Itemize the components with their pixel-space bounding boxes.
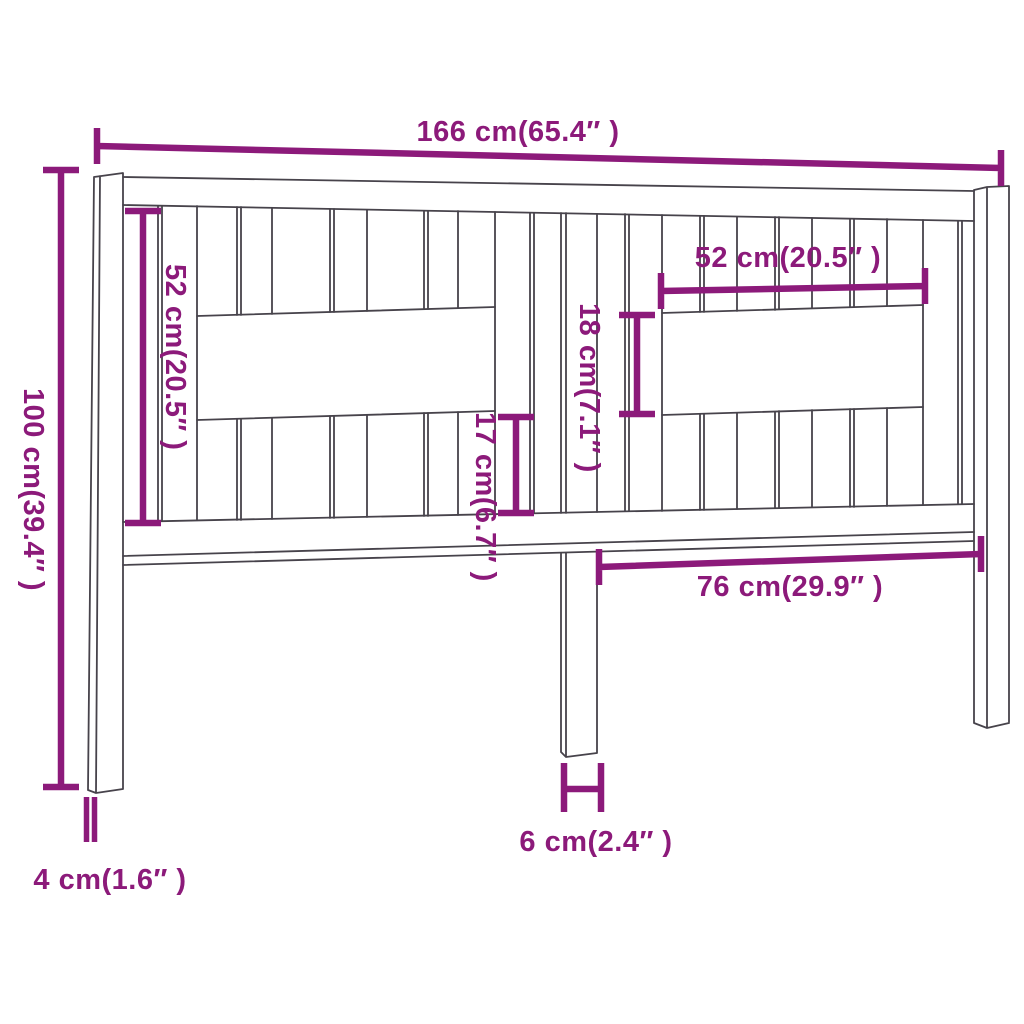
- dim-label-opening-height: 18 cm(7.1″ ): [573, 303, 605, 473]
- opening-right: [662, 305, 923, 415]
- slats-left-upper: [237, 207, 458, 315]
- dim-line-center-leg-width: [564, 763, 601, 812]
- dimension-labels: 166 cm(65.4″ ) 100 cm(39.4″ ) 52 cm(20.5…: [17, 116, 883, 896]
- right-post: [974, 186, 1009, 728]
- dim-label-right-opening-width: 52 cm(20.5″ ): [695, 242, 881, 274]
- dim-line-left-panel-height: [125, 211, 161, 523]
- slats-right-lower: [700, 408, 887, 510]
- dim-label-lower-slat-height: 17 cm(6.7″ ): [469, 412, 501, 582]
- dim-label-total-height: 100 cm(39.4″ ): [17, 388, 49, 591]
- dim-label-side-leg-depth: 4 cm(1.6″ ): [33, 864, 186, 896]
- headboard-dimension-diagram: 166 cm(65.4″ ) 100 cm(39.4″ ) 52 cm(20.5…: [0, 0, 1024, 1024]
- left-post: [88, 173, 123, 793]
- opening-left: [197, 307, 495, 420]
- dim-label-leg-spacing: 76 cm(29.9″ ): [697, 571, 883, 603]
- dim-line-side-leg-depth: [87, 797, 95, 842]
- diagram-stage: 166 cm(65.4″ ) 100 cm(39.4″ ) 52 cm(20.5…: [0, 0, 1024, 1024]
- center-post: [561, 213, 597, 757]
- dimension-lines: [43, 128, 1001, 842]
- dim-label-left-panel-height: 52 cm(20.5″ ): [159, 264, 191, 450]
- dim-label-total-width: 166 cm(65.4″ ): [416, 116, 619, 148]
- slats-left-lower: [237, 412, 458, 520]
- dim-label-center-leg-width: 6 cm(2.4″ ): [519, 826, 672, 858]
- top-rail: [123, 177, 974, 221]
- dim-line-lower-slat-height: [498, 417, 534, 513]
